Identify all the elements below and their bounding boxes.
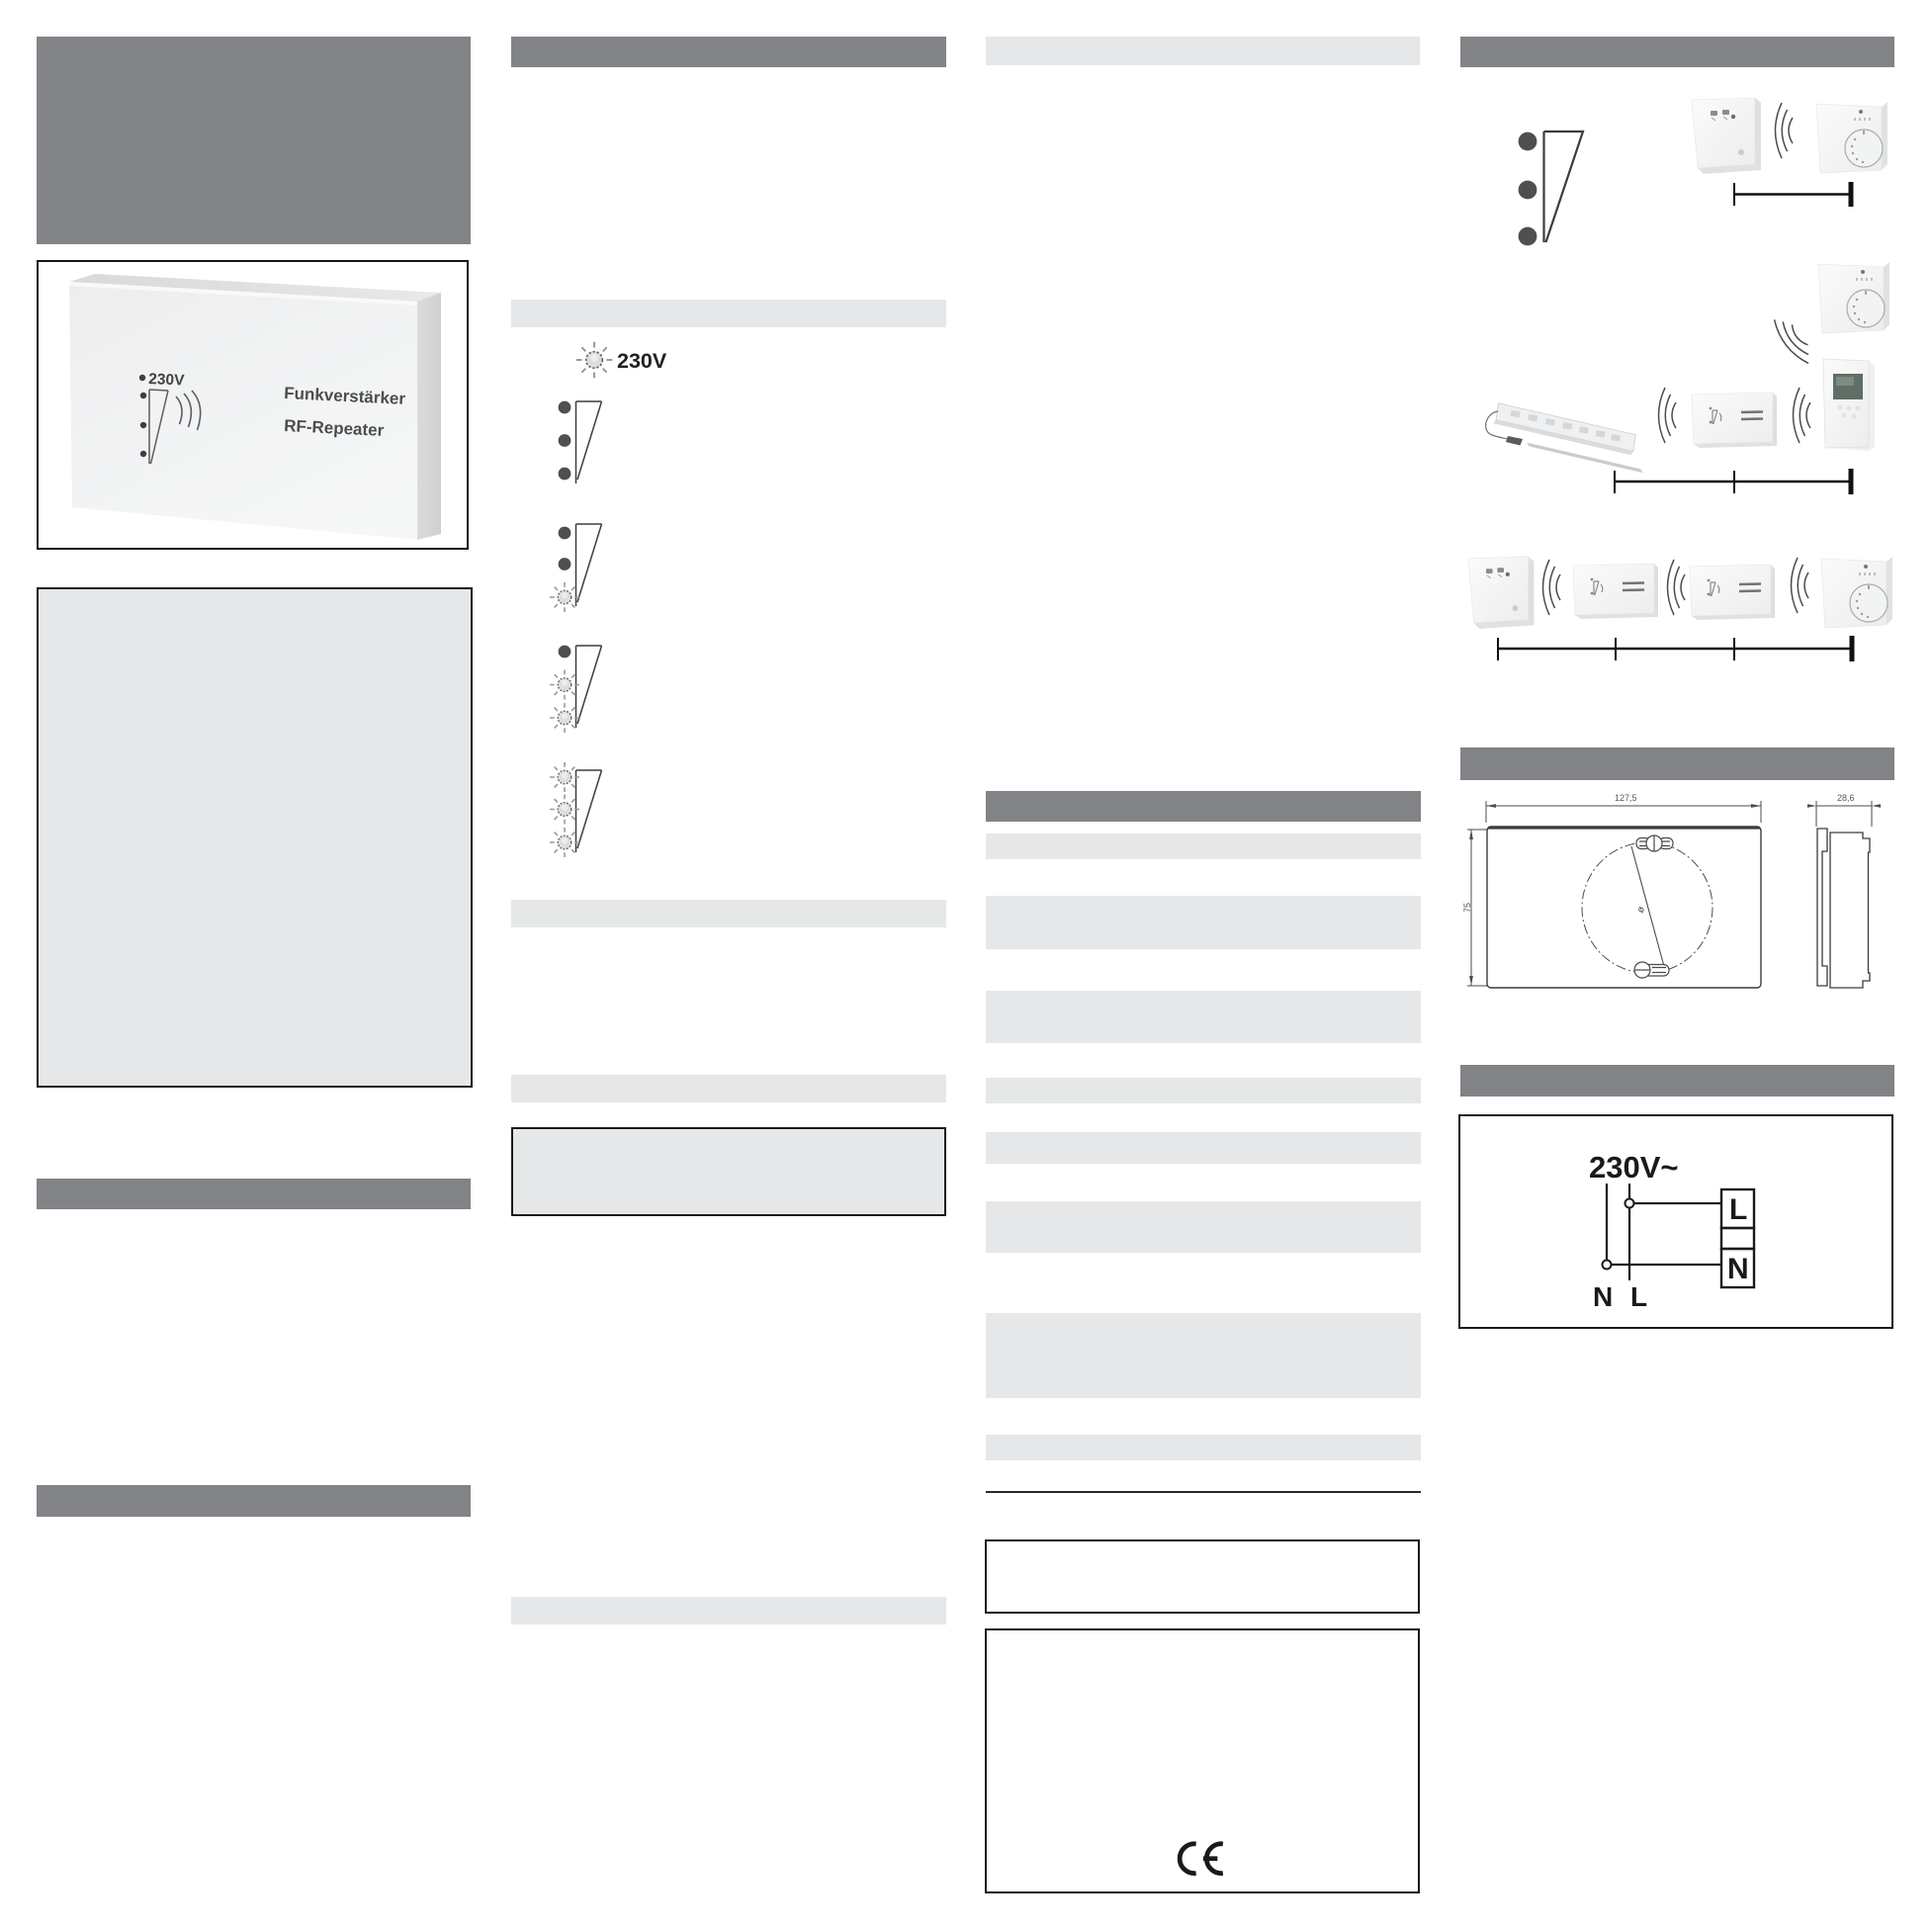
svg-text:L: L (1729, 1193, 1747, 1226)
svg-text:230V: 230V (617, 349, 667, 373)
svg-text:230V~: 230V~ (1589, 1150, 1679, 1185)
svg-text:L: L (1630, 1281, 1647, 1312)
svg-text:230V: 230V (148, 371, 186, 390)
svg-text:28,6: 28,6 (1837, 793, 1855, 803)
svg-text:127,5: 127,5 (1615, 793, 1637, 803)
svg-text:N: N (1593, 1281, 1613, 1312)
svg-text:N: N (1727, 1253, 1749, 1285)
svg-text:75: 75 (1462, 903, 1472, 913)
svg-text:ø: ø (1635, 905, 1648, 915)
